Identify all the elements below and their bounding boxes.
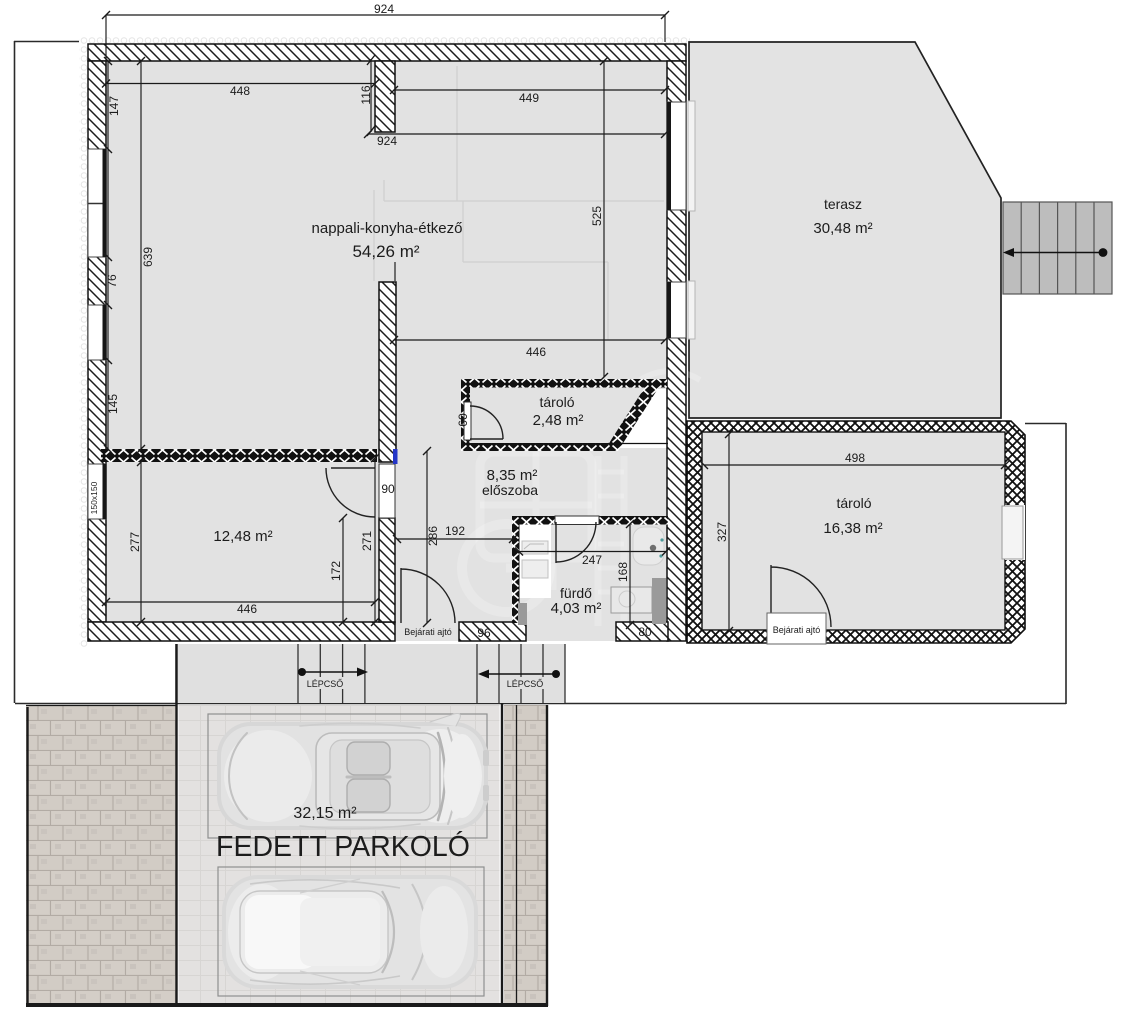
- svg-text:446: 446: [526, 345, 546, 359]
- svg-text:96: 96: [477, 626, 491, 640]
- svg-text:525: 525: [590, 206, 604, 226]
- svg-text:2,48 m²: 2,48 m²: [533, 412, 584, 429]
- svg-text:fürdő: fürdő: [560, 585, 592, 601]
- svg-text:4,03 m²: 4,03 m²: [551, 600, 602, 617]
- svg-text:12,48 m²: 12,48 m²: [213, 528, 272, 545]
- svg-text:924: 924: [377, 134, 397, 148]
- svg-text:30,48 m²: 30,48 m²: [813, 220, 872, 237]
- svg-text:498: 498: [845, 451, 865, 465]
- svg-text:LÉPCSŐ: LÉPCSŐ: [507, 679, 544, 689]
- svg-text:147: 147: [107, 96, 121, 116]
- svg-text:90: 90: [381, 482, 395, 496]
- svg-text:60: 60: [456, 413, 470, 427]
- svg-text:16,38 m²: 16,38 m²: [823, 520, 882, 537]
- svg-text:168: 168: [616, 562, 630, 582]
- svg-text:150x150: 150x150: [89, 481, 99, 514]
- svg-text:448: 448: [230, 84, 250, 98]
- svg-text:76: 76: [105, 274, 119, 288]
- svg-text:449: 449: [519, 91, 539, 105]
- svg-text:LÉPCSŐ: LÉPCSŐ: [307, 679, 344, 689]
- svg-text:286: 286: [426, 526, 440, 546]
- svg-text:előszoba: előszoba: [482, 482, 538, 498]
- svg-text:116: 116: [359, 85, 373, 104]
- svg-text:tároló: tároló: [836, 495, 871, 511]
- svg-text:FEDETT PARKOLÓ: FEDETT PARKOLÓ: [216, 831, 470, 863]
- svg-text:nappali-konyha-étkező: nappali-konyha-étkező: [312, 220, 463, 237]
- svg-text:145: 145: [106, 394, 120, 414]
- svg-text:Bejárati ajtó: Bejárati ajtó: [773, 625, 821, 635]
- svg-text:Bejárati ajtó: Bejárati ajtó: [404, 627, 452, 637]
- svg-text:639: 639: [141, 247, 155, 267]
- svg-text:924: 924: [374, 2, 394, 16]
- svg-text:192: 192: [445, 524, 465, 538]
- svg-text:446: 446: [237, 602, 257, 616]
- svg-text:247: 247: [582, 553, 602, 567]
- svg-text:54,26 m²: 54,26 m²: [352, 242, 419, 261]
- svg-text:terasz: terasz: [824, 196, 862, 212]
- svg-text:80: 80: [638, 625, 652, 639]
- svg-text:tároló: tároló: [539, 394, 574, 410]
- svg-text:271: 271: [360, 531, 374, 551]
- svg-text:277: 277: [128, 532, 142, 552]
- svg-text:32,15 m²: 32,15 m²: [293, 805, 357, 822]
- svg-text:172: 172: [329, 561, 343, 581]
- svg-text:327: 327: [715, 522, 729, 542]
